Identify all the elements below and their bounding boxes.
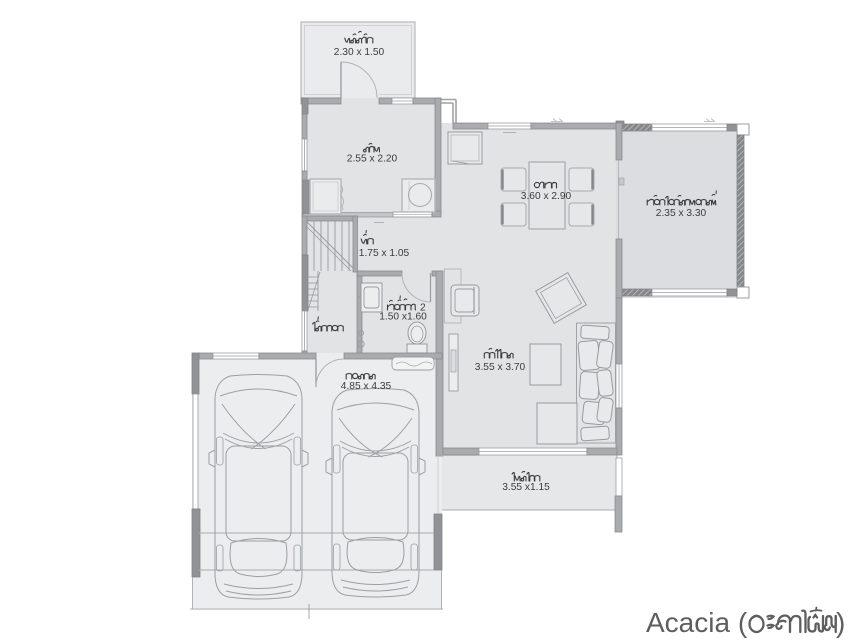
svg-text:): ) bbox=[836, 607, 845, 638]
svg-text:4.85 x 4.35: 4.85 x 4.35 bbox=[341, 381, 392, 392]
svg-text:1.75 x 1.05: 1.75 x 1.05 bbox=[359, 248, 410, 259]
svg-text:3.55 x1.15: 3.55 x1.15 bbox=[502, 482, 550, 493]
svg-text:3.55 x 3.70: 3.55 x 3.70 bbox=[475, 362, 526, 373]
svg-text:2.35 x 3.30: 2.35 x 3.30 bbox=[656, 208, 707, 219]
svg-text:2.30 x 1.50: 2.30 x 1.50 bbox=[334, 47, 385, 58]
svg-text:3.60 x 2.90: 3.60 x 2.90 bbox=[521, 191, 572, 202]
svg-text:2.55 x 2.20: 2.55 x 2.20 bbox=[347, 154, 398, 165]
svg-text:Acacia (: Acacia ( bbox=[646, 607, 748, 638]
svg-text:2: 2 bbox=[420, 303, 426, 314]
